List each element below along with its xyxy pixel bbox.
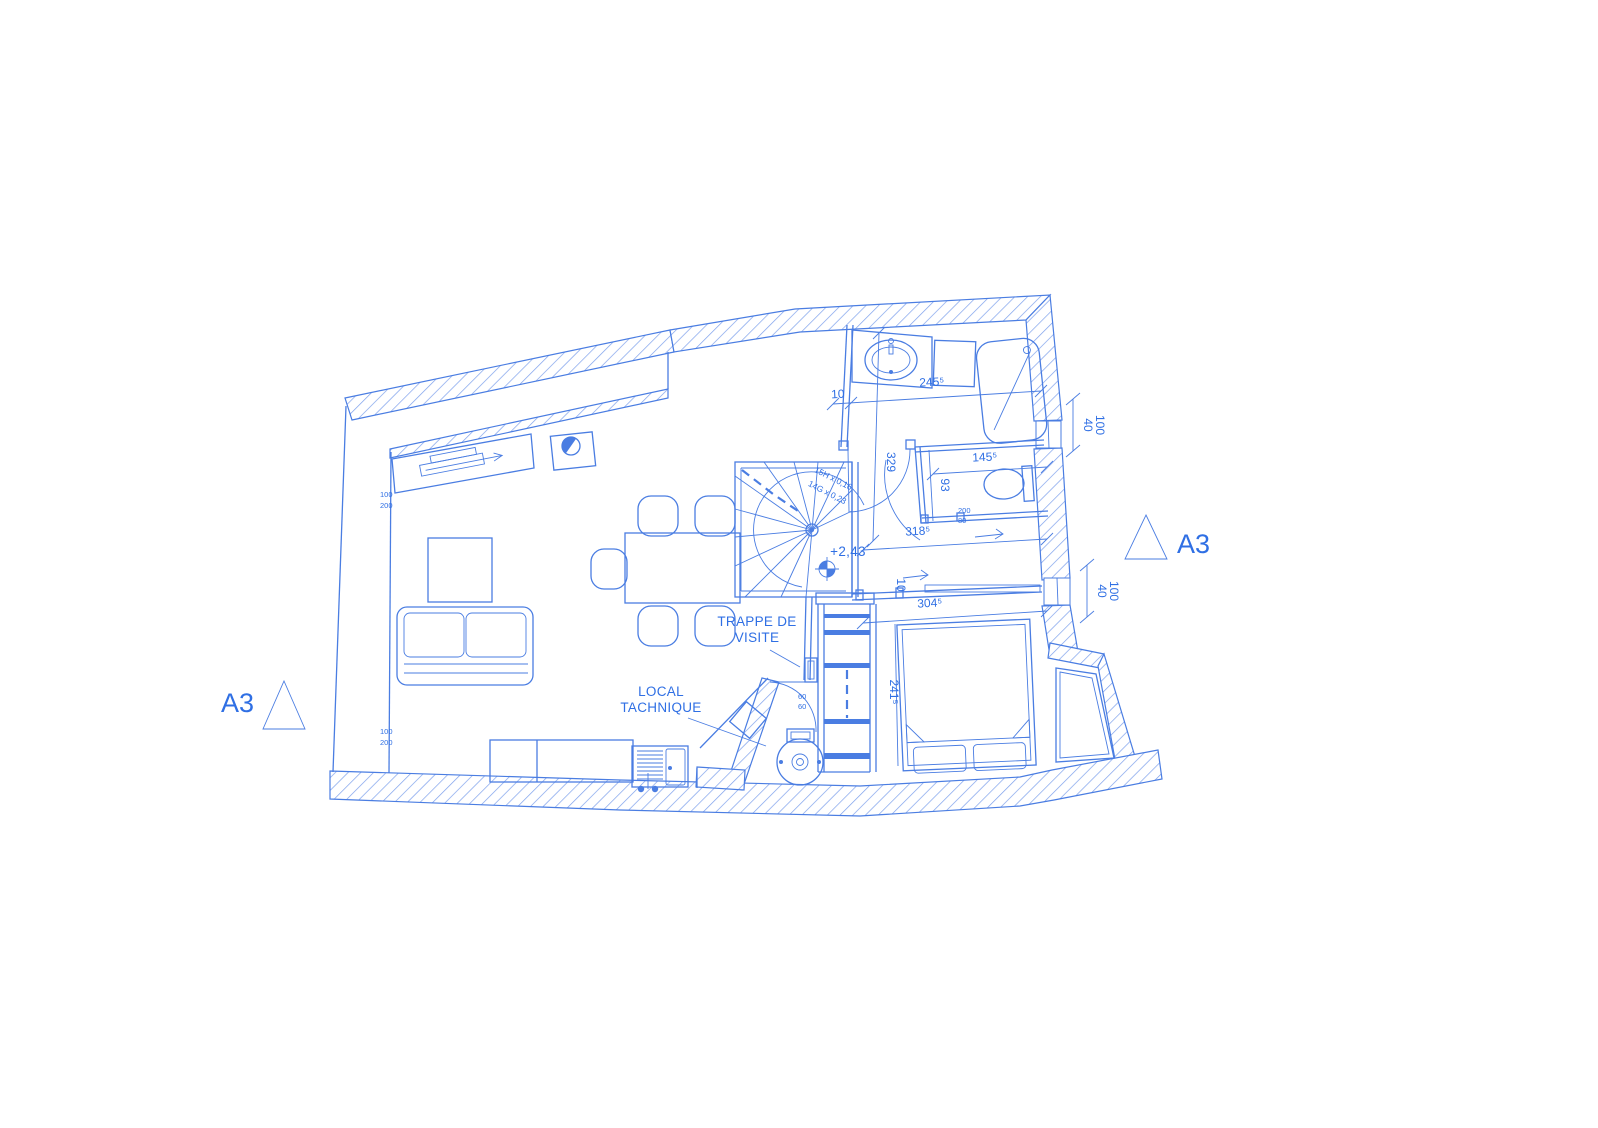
dim-window-right-top-h: 100: [1093, 415, 1107, 435]
section-marker-right-label: A3: [1177, 529, 1210, 559]
floor-plan-svg: 10 245⁵ 329 145⁵ 93 318⁵ 10 304⁵ 241⁵: [0, 0, 1598, 1128]
water-heater: [777, 729, 823, 785]
dim-window-left-bottom-b: 200: [380, 738, 393, 747]
dim-window-right-mid-h: 100: [1107, 581, 1121, 601]
closet: [816, 593, 874, 772]
floor-plan-canvas: 10 245⁵ 329 145⁵ 93 318⁵ 10 304⁵ 241⁵: [0, 0, 1598, 1128]
chair: [638, 606, 678, 646]
level-label: +2,43: [830, 544, 866, 559]
closet-shelf: [824, 614, 870, 618]
chair: [591, 549, 627, 589]
annotation-trappe: TRAPPE DE VISITE: [717, 614, 800, 667]
blanket-fold: [1012, 719, 1030, 738]
stair-up-line: [742, 470, 801, 513]
toilet: [983, 466, 1034, 502]
dim-window-left-bottom-a: 100: [380, 727, 393, 736]
section-marker-left: A3: [221, 681, 305, 729]
closet-shelf: [824, 663, 870, 668]
closet-shelf: [824, 719, 870, 724]
tv-square: [428, 538, 492, 602]
sofa: [397, 607, 533, 685]
window-right-top: [1036, 421, 1061, 448]
closet-shelf: [824, 753, 870, 759]
dim-bath-width: 245⁵: [919, 374, 945, 389]
dim-hall-width: 318⁵: [905, 523, 931, 538]
blanket-fold: [906, 724, 924, 743]
closet-shelf: [824, 630, 870, 635]
dim-window-right-top-w: 40: [1081, 418, 1095, 432]
window-right-mid: [1044, 578, 1070, 605]
dim-window-left-top-b: 200: [380, 501, 393, 510]
side-table: [550, 432, 595, 470]
section-marker-left-triangle: [263, 681, 305, 729]
dim-window-right-mid-w: 40: [1095, 584, 1109, 598]
bath-sink: [865, 339, 917, 381]
section-marker-right: A3: [1125, 515, 1210, 559]
local-label-line2: TACHNIQUE: [620, 700, 701, 715]
dim-bedroom-depth: 241⁵: [887, 680, 901, 705]
dim-bed-gap: 10: [894, 578, 908, 592]
chair: [695, 496, 735, 536]
section-marker-right-triangle: [1125, 515, 1167, 559]
trappe-label-line2: VISITE: [735, 630, 780, 645]
dim-bedroom-width: 304⁵: [917, 595, 943, 610]
direction-arrow: [975, 529, 1003, 539]
dim-stair-opening: 329: [884, 452, 898, 472]
dim-door-hall-h: 60: [798, 702, 806, 711]
dimension-lines: 10 245⁵ 329 145⁵ 93 318⁵ 10 304⁵ 241⁵: [380, 327, 1121, 766]
wall-left: [333, 406, 391, 773]
dining-table: [625, 533, 740, 603]
exterior-walls: [330, 295, 1162, 816]
dim-wc-door-w: 80: [958, 516, 966, 525]
wall-top-right: [670, 295, 1050, 352]
dim-window-left-top-a: 100: [380, 490, 393, 499]
local-label-line1: LOCAL: [638, 684, 684, 699]
dim-wc-door-h: 200: [958, 506, 971, 515]
dim-door-hall-w: 60: [798, 692, 806, 701]
dim-wc-width: 145⁵: [972, 449, 998, 464]
stair-notes: 15H x 0,16 14G x 0,23: [807, 465, 855, 507]
dim-bath-gap: 10: [831, 387, 845, 402]
chair: [638, 496, 678, 536]
kitchen-counter: [490, 740, 633, 782]
dim-wc-depth: 93: [938, 478, 952, 492]
step-local-technique: [696, 767, 745, 790]
section-marker-left-label: A3: [221, 688, 254, 718]
trappe-label-line1: TRAPPE DE: [717, 614, 796, 629]
bed: [897, 619, 1036, 774]
dining-chairs: [591, 496, 735, 646]
